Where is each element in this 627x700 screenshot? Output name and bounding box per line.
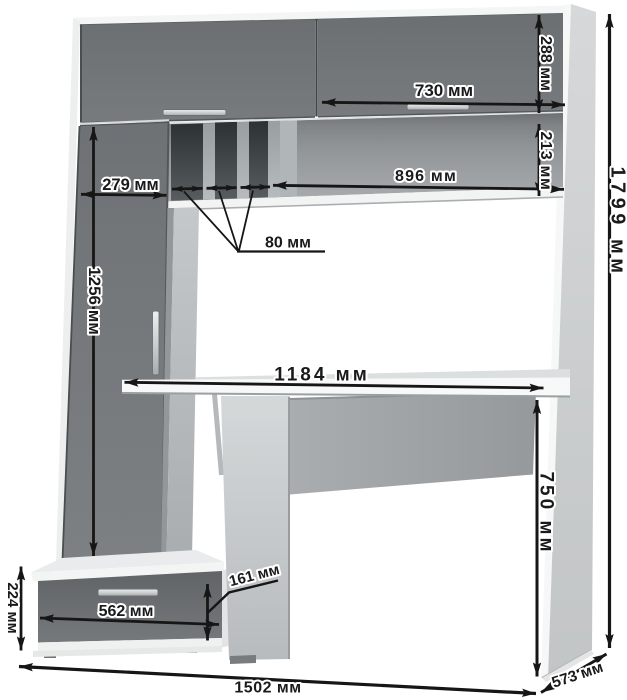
svg-text:213 мм: 213 мм [537, 131, 554, 190]
svg-text:750 мм: 750 мм [536, 471, 557, 554]
svg-text:1502 мм: 1502 мм [234, 680, 301, 697]
svg-text:279 мм: 279 мм [102, 176, 159, 194]
svg-text:80 мм: 80 мм [265, 235, 311, 252]
svg-text:562 мм: 562 мм [99, 603, 154, 620]
svg-text:896 мм: 896 мм [395, 168, 457, 185]
svg-text:288 мм: 288 мм [537, 36, 554, 91]
svg-text:224 мм: 224 мм [4, 582, 21, 633]
svg-text:1256 мм: 1256 мм [85, 267, 104, 335]
svg-text:1799 мм: 1799 мм [607, 166, 627, 277]
svg-text:1184 мм: 1184 мм [274, 365, 370, 386]
svg-text:730 мм: 730 мм [415, 81, 473, 100]
